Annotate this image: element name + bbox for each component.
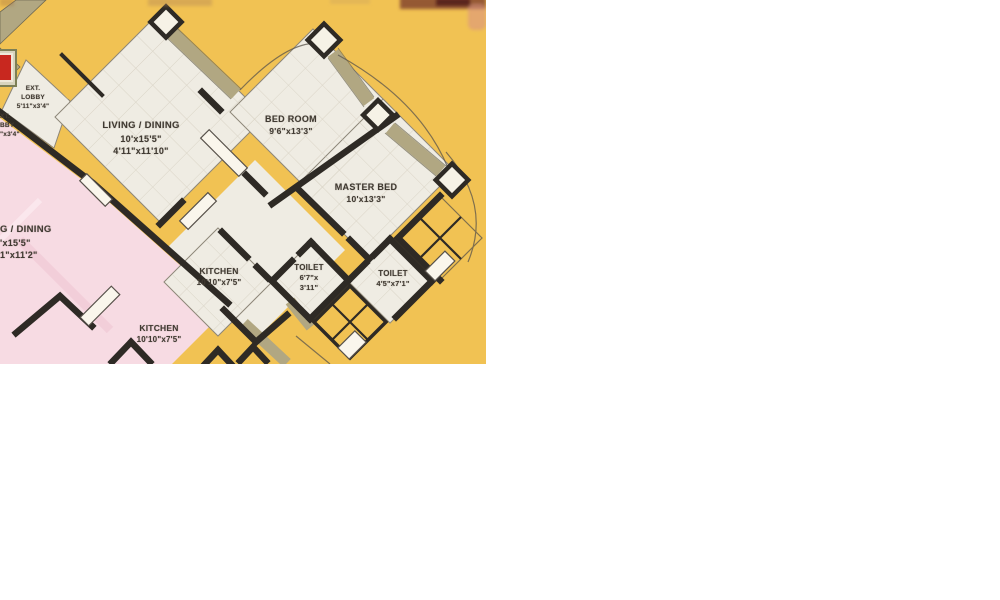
label-line: 5'11"x3'4" <box>17 102 50 111</box>
label-line: 6'7"x <box>294 273 324 283</box>
label-line: KITCHEN <box>197 266 242 277</box>
room-label-master-bed: MASTER BED 10'x13'3" <box>335 182 398 205</box>
label-line: TOILET <box>376 269 409 279</box>
label-line: G / DINING <box>0 224 52 237</box>
room-label-bed-room: BED ROOM 9'6"x13'3" <box>265 114 317 137</box>
label-line: 'x15'5" <box>0 237 52 250</box>
floorplan-drawing <box>0 0 486 364</box>
label-line: 3'11" <box>294 283 324 293</box>
label-line: 1"x11'2" <box>0 249 52 262</box>
label-line: 10'x15'5" <box>102 133 179 146</box>
label-line: 4'5"x7'1" <box>376 279 409 289</box>
label-line: 10'10"x7'5" <box>137 334 182 345</box>
label-line: 10'x13'3" <box>335 194 398 206</box>
label-line: 9'6"x13'3" <box>265 126 317 138</box>
red-stamp <box>0 50 16 86</box>
label-line: KITCHEN <box>137 323 182 334</box>
room-label-living-dining-cut: G / DINING 'x15'5" 1"x11'2" <box>0 224 52 262</box>
label-line: TOILET <box>294 263 324 273</box>
label-line: BED ROOM <box>265 114 317 126</box>
floorplan-scan: EXT. LOBBY 5'11"x3'4" XT. BBY "x3'4" LIV… <box>0 0 486 364</box>
room-label-ext-lobby-cut: XT. BBY "x3'4" <box>0 112 20 139</box>
label-line: BBY <box>0 121 20 130</box>
room-label-living-dining: LIVING / DINING 10'x15'5" 4'11"x11'10" <box>102 120 179 158</box>
room-label-kitchen-2: KITCHEN 10'10"x7'5" <box>137 323 182 345</box>
room-label-toilet-2: TOILET 4'5"x7'1" <box>376 269 409 289</box>
label-line: 10'10"x7'5" <box>197 277 242 288</box>
label-line: XT. <box>0 112 20 121</box>
label-line: LOBBY <box>17 93 50 102</box>
label-line: MASTER BED <box>335 182 398 194</box>
label-line: 4'11"x11'10" <box>102 145 179 158</box>
room-label-ext-lobby: EXT. LOBBY 5'11"x3'4" <box>17 84 50 111</box>
room-label-kitchen: KITCHEN 10'10"x7'5" <box>197 266 242 288</box>
label-line: "x3'4" <box>0 130 20 139</box>
page-canvas: { "page": { "background": "#ffffff", "wi… <box>0 0 1000 600</box>
room-label-toilet-1: TOILET 6'7"x 3'11" <box>294 263 324 293</box>
label-line: LIVING / DINING <box>102 120 179 133</box>
label-line: EXT. <box>17 84 50 93</box>
